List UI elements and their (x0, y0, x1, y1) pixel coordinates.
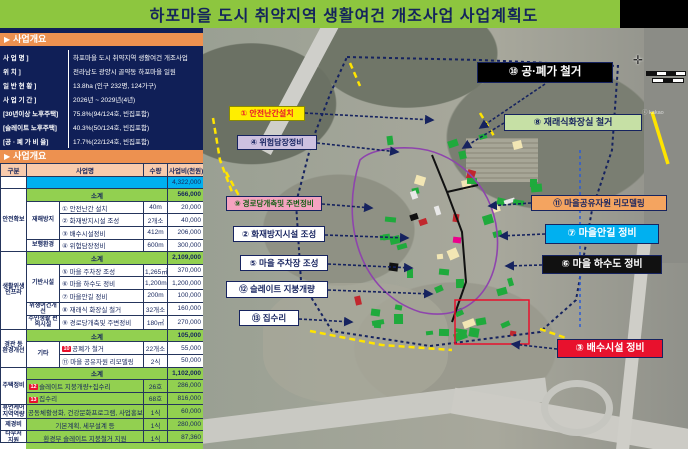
map-label-10: ⑩ 공·폐가 철거 (477, 62, 613, 83)
building-marker (394, 314, 403, 324)
building-marker (510, 331, 517, 337)
overview-row: 위 치 ]전라남도 광양시 골약동 하포마을 일원 (3, 64, 200, 78)
map-label-11: ⑪ 마을공유자원 리모델링 (531, 195, 667, 211)
budget-cell: 구분 (1, 164, 27, 177)
budget-cell: 280,000 (168, 418, 203, 431)
building-marker (512, 140, 523, 150)
budget-cell: 10공폐가 철거 (60, 342, 144, 355)
overview-row: [30년이상 노후주택]75.8%(94/124호, 빈집포함) (3, 106, 200, 120)
budget-cell: 기반시설 (27, 264, 60, 302)
overview-section-header: ▶사업개요 (0, 33, 203, 46)
budget-table: 구분사업명수량사업비(천원)4,322,000안전확보소계566,000재해방지… (0, 163, 203, 445)
budget-header-label: 사업개요 (13, 151, 46, 161)
building-marker (491, 205, 500, 213)
budget-cell (1, 176, 27, 189)
budget-cell: 2개소 (144, 214, 168, 227)
building-marker (385, 216, 396, 222)
overview-row-label: 위 치 ] (3, 66, 67, 76)
map-label-2: ② 화재방지시설 조성 (233, 226, 325, 242)
budget-cell: 휴먼케어 지역역량 (1, 405, 27, 419)
building-marker (437, 254, 444, 260)
budget-cell: 22개소 (144, 342, 168, 355)
budget-table-wrap: 구분사업명수량사업비(천원)4,322,000안전확보소계566,000재해방지… (0, 163, 203, 449)
budget-cell: 소계 (27, 329, 168, 342)
budget-row: 기반시설⑤ 마을 주차장 조성1,265㎡370,000 (1, 264, 204, 277)
budget-cell: 사업비(천원) (168, 164, 203, 177)
item-number-badge: 12 (29, 384, 38, 390)
budget-cell: ⑥ 마을 하수도 정비 (60, 277, 144, 290)
budget-cell: ⑨ 경로당개축및 주변정비 (60, 316, 144, 330)
building-marker (467, 178, 477, 184)
compass-icon: ✛ (630, 52, 646, 68)
budget-cell: 1,265㎡ (144, 264, 168, 277)
budget-cell: 경관 등 환경개선 (1, 329, 27, 367)
info-divider (68, 50, 69, 148)
building-marker (468, 327, 479, 338)
building-marker (374, 322, 382, 328)
budget-cell: 270,000 (168, 316, 203, 330)
map-label-12: ⑫ 슬레이트 지붕개량 (226, 281, 328, 298)
overview-row-value: 13.8ha (인구 232명, 124가구) (67, 80, 156, 90)
budget-row: 경관 등 환경개선소계105,000 (1, 329, 204, 342)
building-marker (446, 247, 459, 260)
budget-cell: 2식 (144, 354, 168, 367)
building-marker (354, 296, 362, 306)
budget-cell: ⑦ 마을안길 정비 (60, 289, 144, 302)
budget-cell: 사업명 (27, 164, 144, 177)
building-marker (370, 308, 379, 316)
map-label-1: ① 안전난간설치 (229, 106, 305, 121)
budget-cell: 1식 (144, 405, 168, 419)
budget-cell: 816,000 (168, 392, 203, 405)
budget-cell: 13집수리 (27, 392, 144, 405)
overview-row: [슬레이트 노후주택]40.3%(50/124호, 빈집포함) (3, 120, 200, 134)
budget-cell: 200m (144, 289, 168, 302)
building-marker (434, 205, 442, 215)
budget-cell: 보행환경 (27, 239, 60, 252)
building-marker (475, 317, 486, 326)
budget-row: 4,322,000 (1, 176, 204, 189)
budget-cell: 180㎡ (144, 316, 168, 330)
map-label-7: ⑦ 마을안길 정비 (545, 224, 659, 244)
budget-cell: 생활위생 인프라 (1, 252, 27, 330)
budget-cell: 370,000 (168, 264, 203, 277)
overview-row-value: 전라남도 광양시 골약동 하포마을 일원 (67, 66, 176, 76)
section-arrow-icon: ▶ (4, 152, 10, 161)
overview-row: [공 · 폐 가 비 율]17.7%(22/124호, 빈집포함) (3, 134, 200, 148)
budget-row: 제경비기본계획, 세부설계 등1식280,000 (1, 418, 204, 431)
budget-cell: 206,000 (168, 226, 203, 239)
overview-row-label: [공 · 폐 가 비 율] (3, 136, 67, 146)
map-label-5: ⑤ 마을 주차장 조성 (240, 255, 328, 271)
budget-cell: 50,000 (168, 354, 203, 367)
budget-cell (27, 176, 168, 189)
budget-cell: ③ 배수시설정비 (60, 226, 144, 239)
budget-cell: 55,000 (168, 342, 203, 355)
budget-row: 주민생활 편의시설⑨ 경로당개축및 주변정비180㎡270,000 (1, 316, 204, 330)
budget-cell: 4,322,000 (168, 176, 203, 189)
page-title: 하포마을 도시 취약지역 생활여건 개조사업 사업계획도 (150, 2, 539, 26)
section-arrow-icon: ▶ (4, 35, 10, 44)
cut-row (26, 442, 203, 449)
budget-cell: 안전확보 (1, 189, 27, 252)
building-marker (414, 175, 426, 187)
budget-cell: 재해방지 (27, 201, 60, 239)
overview-row-value: 하포마을 도시 취약지역 생활여건 개조사업 (67, 52, 188, 62)
map-label-6: ⑥ 마을 하수도 정비 (542, 255, 662, 274)
budget-cell: 26호 (144, 380, 168, 393)
building-marker (452, 213, 459, 221)
budget-cell: 소계 (27, 367, 168, 380)
budget-cell: 주민생활 편의시설 (27, 316, 60, 330)
budget-cell: 기타 (27, 342, 60, 367)
budget-cell: 기본계획, 세부설계 등 (27, 418, 144, 431)
budget-cell: 1,200m (144, 277, 168, 290)
budget-cell: ④ 위험담장정비 (60, 239, 144, 252)
building-marker (434, 285, 444, 294)
building-marker (438, 268, 448, 275)
building-marker (531, 184, 543, 193)
budget-row: 재해방지① 안전난간 설치40m20,000 (1, 201, 204, 214)
budget-cell: 286,000 (168, 380, 203, 393)
overview-row-value: 75.8%(94/124호, 빈집포함) (67, 108, 149, 118)
budget-cell: 12슬레이트 지붕개량+집수리 (27, 380, 144, 393)
building-marker (394, 304, 402, 311)
item-number-badge: 13 (29, 397, 38, 403)
budget-cell: 40,000 (168, 214, 203, 227)
budget-row: 12슬레이트 지붕개량+집수리26호286,000 (1, 380, 204, 393)
budget-cell: ⑧ 재래식 화장실 철거 (60, 302, 144, 316)
budget-cell: 제경비 (1, 418, 27, 431)
budget-cell: 600m (144, 239, 168, 252)
plan-sheet: 하포마을 도시 취약지역 생활여건 개조사업 사업계획도 ▶사업개요 사 업 명… (0, 0, 688, 449)
scale-bar-2 (652, 78, 684, 83)
overview-row: 사 업 기 간 ]2026년 ~ 2029년(4년) (3, 92, 200, 106)
map-label-13: ⑬ 집수리 (239, 310, 299, 326)
title-bar: 하포마을 도시 취약지역 생활여건 개조사업 사업계획도 (0, 0, 688, 28)
title-corner-block (620, 0, 688, 28)
budget-cell: 위생여건개선 (27, 302, 60, 316)
building-marker (426, 330, 433, 335)
map-label-8: ⑧ 재래식화장실 철거 (504, 114, 642, 131)
overview-row-value: 40.3%(50/124호, 빈집포함) (67, 122, 149, 132)
overview-row-value: 17.7%(22/124호, 빈집포함) (67, 136, 149, 146)
budget-row: 안전확보소계566,000 (1, 189, 204, 202)
building-marker (418, 218, 428, 226)
budget-cell: 수량 (144, 164, 168, 177)
budget-cell: 300,000 (168, 239, 203, 252)
budget-row: 기타10공폐가 철거22개소55,000 (1, 342, 204, 355)
budget-cell: 1,102,000 (168, 367, 203, 380)
budget-cell: 32개소 (144, 302, 168, 316)
overview-row-label: 사 업 기 간 ] (3, 94, 67, 104)
budget-cell: ① 안전난간 설치 (60, 201, 144, 214)
budget-cell: 68호 (144, 392, 168, 405)
building-marker (386, 136, 393, 145)
budget-cell: ② 화재방지시설 조성 (60, 214, 144, 227)
building-marker (452, 236, 460, 243)
building-marker (482, 214, 495, 226)
building-marker (407, 269, 413, 278)
budget-cell: ⑪ 마을 공유자원 리모델링 (60, 354, 144, 367)
overview-row-label: [슬레이트 노후주택] (3, 122, 67, 132)
building-marker (458, 150, 466, 159)
overview-row: 일 반 현 황 ]13.8ha (인구 232명, 124가구) (3, 78, 200, 92)
building-marker (389, 262, 399, 271)
overview-row-value: 2026년 ~ 2029년(4년) (67, 94, 135, 104)
item-number-badge: 10 (62, 346, 71, 352)
overview-row-label: 일 반 현 황 ] (3, 80, 67, 90)
budget-row: 13집수리68호816,000 (1, 392, 204, 405)
building-marker (396, 243, 407, 251)
overview-row-label: [30년이상 노후주택] (3, 108, 67, 118)
budget-cell: 소계 (27, 189, 168, 202)
budget-cell: 60,000 (168, 405, 203, 419)
map-label-3: ③ 배수시설 정비 (557, 339, 663, 358)
building-marker (507, 278, 514, 287)
budget-row: 생활위생 인프라소계2,109,000 (1, 252, 204, 265)
budget-cell: 공동체활성화, 건강문화프로그램, 사업홍보 등 (27, 405, 144, 419)
building-marker (447, 139, 459, 149)
building-marker (492, 230, 502, 238)
budget-row: 휴먼케어 지역역량공동체활성화, 건강문화프로그램, 사업홍보 등1식60,00… (1, 405, 204, 419)
budget-cell: 소계 (27, 252, 168, 265)
map-label-9: ⑨ 경로당개축및 주변정비 (226, 196, 322, 211)
budget-row: 구분사업명수량사업비(천원) (1, 164, 204, 177)
budget-cell: ⑤ 마을 주차장 조성 (60, 264, 144, 277)
budget-section-header: ▶사업개요 (0, 150, 203, 163)
budget-row: 보행환경④ 위험담장정비600m300,000 (1, 239, 204, 252)
budget-cell: 566,000 (168, 189, 203, 202)
budget-row: 위생여건개선⑧ 재래식 화장실 철거32개소160,000 (1, 302, 204, 316)
budget-cell: 1식 (144, 418, 168, 431)
building-marker (439, 329, 450, 336)
budget-cell: 주택정비 (1, 367, 27, 405)
overview-row-label: 사 업 명 ] (3, 52, 67, 62)
budget-cell: 412m (144, 226, 168, 239)
budget-cell: 20,000 (168, 201, 203, 214)
building-marker (512, 199, 524, 206)
budget-cell: 1,200,000 (168, 277, 203, 290)
building-marker (456, 278, 464, 287)
building-marker (501, 320, 511, 328)
map-label-4: ④ 위험담장정비 (237, 135, 317, 150)
building-marker (454, 308, 464, 317)
building-marker (496, 286, 508, 296)
building-marker (478, 133, 487, 140)
budget-row: 주택정비소계1,102,000 (1, 367, 204, 380)
budget-cell: 2,109,000 (168, 252, 203, 265)
budget-cell: 40m (144, 201, 168, 214)
scale-bar (646, 71, 686, 76)
map-watermark: ⓒ kakao (642, 108, 664, 116)
cut-row-gubun (0, 442, 26, 449)
budget-cell: 160,000 (168, 302, 203, 316)
budget-cell: 100,000 (168, 289, 203, 302)
overview-header-label: 사업개요 (13, 34, 46, 44)
left-panel: ▶사업개요 사 업 명 ]하포마을 도시 취약지역 생활여건 개조사업위 치 ]… (0, 28, 203, 449)
budget-cell: 105,000 (168, 329, 203, 342)
overview-row: 사 업 명 ]하포마을 도시 취약지역 생활여건 개조사업 (3, 50, 200, 64)
overview-info-list: 사 업 명 ]하포마을 도시 취약지역 생활여건 개조사업위 치 ]전라남도 광… (3, 50, 200, 148)
